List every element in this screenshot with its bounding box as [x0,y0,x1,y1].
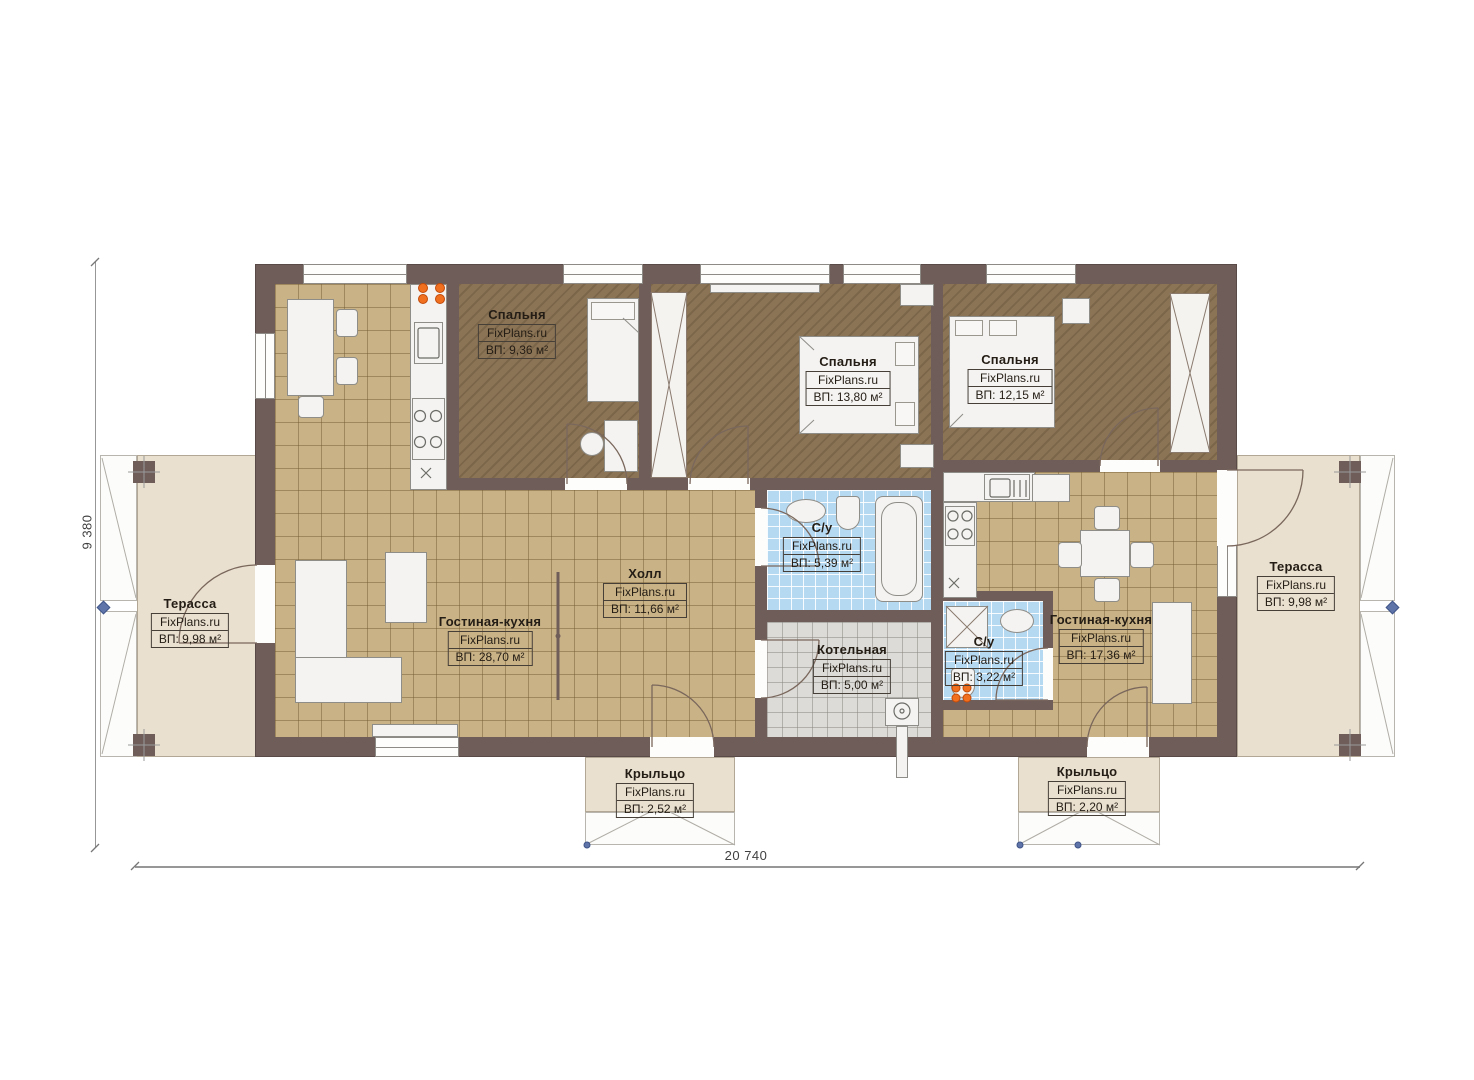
chair-icon [1094,506,1120,530]
sofa-icon [1152,602,1192,704]
room-area: ВП: 5,00 м² [814,676,890,693]
room-area: ВП: 17,36 м² [1060,646,1143,663]
watermark-text: FixPlans.ru [814,660,890,676]
pillow-icon [955,320,983,336]
room-name: Котельная [813,642,891,657]
chair-icon [298,396,324,418]
pillow-icon [591,302,635,320]
stove-icon [412,398,445,460]
dimension-line-vertical [95,262,96,848]
wall [943,700,1053,710]
room-name: С/у [783,520,861,535]
watermark-text: FixPlans.ru [479,325,555,341]
watermark-text: FixPlans.ru [807,372,890,388]
nightstand-icon [900,444,934,468]
room-name: Крыльцо [1048,764,1126,779]
kitchen-sink-icon [984,474,1030,500]
sofa-icon [295,657,402,703]
wall [943,460,1217,472]
chair-icon [336,357,358,385]
terrace-post [1339,461,1361,483]
porch-right-steps [1018,812,1160,845]
window [986,264,1076,284]
room-info-box: FixPlans.ru ВП: 3,22 м² [945,651,1023,686]
room-name: Спальня [806,354,891,369]
window [303,264,407,284]
room-area: ВП: 9,98 м² [152,630,228,647]
door-opening [688,478,750,490]
watermark-text: FixPlans.ru [969,370,1052,386]
terrace-post [133,461,155,483]
radiator-icon [372,724,458,737]
wardrobe-icon [1170,293,1210,453]
watermark-text: FixPlans.ru [1060,630,1143,646]
window [563,264,643,284]
window [255,333,275,399]
chair-icon [1058,542,1082,568]
roof-outline-left-top [100,455,137,601]
chair-icon [1094,578,1120,602]
wall [767,610,931,622]
door-opening [650,737,714,757]
sink-icon [1000,609,1034,633]
room-area: ВП: 9,98 м² [1258,593,1334,610]
room-area: ВП: 3,22 м² [946,668,1022,685]
room-area: ВП: 9,36 м² [479,341,555,358]
watermark-text: FixPlans.ru [604,584,686,600]
room-label-bath-main: С/у FixPlans.ru ВП: 5,39 м² [783,520,861,572]
dining-table-icon [1080,530,1130,577]
room-info-box: FixPlans.ru ВП: 2,52 м² [616,783,694,818]
room-name: Холл [603,566,687,581]
watermark-text: FixPlans.ru [617,784,693,800]
watermark-text: FixPlans.ru [152,614,228,630]
room-name: Гостиная-кухня [1050,612,1152,627]
nightstand-icon [900,284,934,306]
room-name: Терасса [1257,559,1335,574]
room-area: ВП: 2,20 м² [1049,798,1125,815]
watermark-text: FixPlans.ru [946,652,1022,668]
window [843,264,921,284]
room-info-box: FixPlans.ru ВП: 12,15 м² [968,369,1053,404]
flue-pipe-icon [896,726,908,778]
window-sill [710,284,820,293]
room-name: Терасса [151,596,229,611]
room-label-bedroom1: Спальня FixPlans.ru ВП: 9,36 м² [478,307,556,359]
door-opening [565,478,627,490]
floor-plan-canvas: 9 380 20 740 [0,0,1474,1080]
room-area: ВП: 12,15 м² [969,386,1052,403]
roof-outline-right-bottom [1360,611,1395,757]
wall [931,284,943,737]
door-opening [755,640,767,698]
room-label-bedroom2: Спальня FixPlans.ru ВП: 13,80 м² [806,354,891,406]
terrace-post [133,734,155,756]
bathtub-inner [881,502,917,596]
wall [447,284,459,490]
room-label-living-left: Гостиная-кухня FixPlans.ru ВП: 28,70 м² [439,614,541,666]
room-label-terrace-left: Терасса FixPlans.ru ВП: 9,98 м² [151,596,229,648]
room-name: Спальня [478,307,556,322]
fridge-icon [1032,474,1070,502]
wall [639,284,651,478]
stove-icon [945,506,975,546]
room-info-box: FixPlans.ru ВП: 17,36 м² [1059,629,1144,664]
room-label-porch-right: Крыльцо FixPlans.ru ВП: 2,20 м² [1048,764,1126,816]
door-opening [755,508,767,566]
watermark-text: FixPlans.ru [1049,782,1125,798]
room-label-boiler: Котельная FixPlans.ru ВП: 5,00 м² [813,642,891,694]
room-info-box: FixPlans.ru ВП: 9,98 м² [1257,576,1335,611]
terrace-post [1339,734,1361,756]
coffee-table-icon [385,552,427,623]
room-label-terrace-right: Терасса FixPlans.ru ВП: 9,98 м² [1257,559,1335,611]
pillow-icon [895,402,915,426]
door-opening [1087,737,1149,757]
door-opening [255,565,275,643]
boiler-icon [885,698,919,726]
nightstand-icon [1062,298,1090,324]
roof-outline-right-top [1360,455,1395,601]
room-info-box: FixPlans.ru ВП: 9,36 м² [478,324,556,359]
room-label-hall: Холл FixPlans.ru ВП: 11,66 м² [603,566,687,618]
room-name: Спальня [968,352,1053,367]
chair-icon [580,432,604,456]
room-name: Гостиная-кухня [439,614,541,629]
room-area: ВП: 5,39 м² [784,554,860,571]
room-info-box: FixPlans.ru ВП: 9,98 м² [151,613,229,648]
kitchen-sink-icon [414,322,443,364]
dimension-line-horizontal [135,866,1360,868]
watermark-text: FixPlans.ru [449,632,532,648]
pillow-icon [989,320,1017,336]
pillow-icon [895,342,915,366]
room-info-box: FixPlans.ru ВП: 28,70 м² [448,631,533,666]
room-area: ВП: 11,66 м² [604,600,686,617]
room-info-box: FixPlans.ru ВП: 2,20 м² [1048,781,1126,816]
door-opening [1100,460,1160,472]
chair-icon [1130,542,1154,568]
watermark-text: FixPlans.ru [784,538,860,554]
room-name: С/у [945,634,1023,649]
desk-icon [604,420,638,472]
window [700,264,830,284]
dimension-height-label: 9 380 [80,514,95,549]
room-info-box: FixPlans.ru ВП: 5,39 м² [783,537,861,572]
room-label-bedroom3: Спальня FixPlans.ru ВП: 12,15 м² [968,352,1053,404]
room-info-box: FixPlans.ru ВП: 11,66 м² [603,583,687,618]
room-info-box: FixPlans.ru ВП: 5,00 м² [813,659,891,694]
room-label-living-right: Гостиная-кухня FixPlans.ru ВП: 17,36 м² [1050,612,1152,664]
door-opening [1217,470,1237,546]
room-area: ВП: 2,52 м² [617,800,693,817]
roof-outline-left-bottom [100,611,137,757]
wardrobe-icon [651,292,687,478]
room-label-porch-left: Крыльцо FixPlans.ru ВП: 2,52 м² [616,766,694,818]
room-name: Крыльцо [616,766,694,781]
room-area: ВП: 13,80 м² [807,388,890,405]
dimension-width-label: 20 740 [725,848,768,863]
room-label-bath-small: С/у FixPlans.ru ВП: 3,22 м² [945,634,1023,686]
room-area: ВП: 28,70 м² [449,648,532,665]
window [375,737,459,757]
watermark-text: FixPlans.ru [1258,577,1334,593]
room-info-box: FixPlans.ru ВП: 13,80 м² [806,371,891,406]
dining-table-icon [287,299,334,396]
chair-icon [336,309,358,337]
